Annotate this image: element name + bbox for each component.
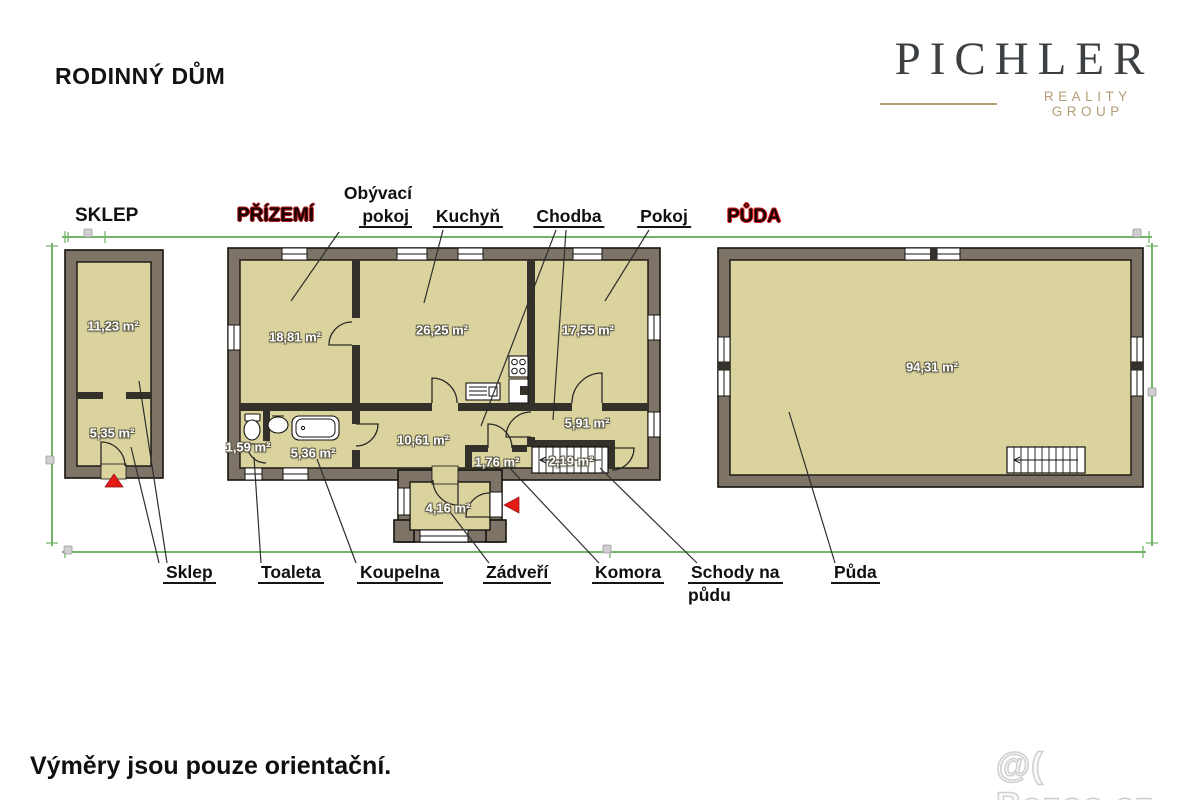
room-label-kuchyn: Kuchyň [433,205,503,228]
toilet-icon [244,414,260,440]
floor-title-puda: PŮDA [727,206,781,228]
area-label-komora: 1,76 m² [475,455,520,470]
entrance-door-opening [490,492,502,517]
footer-disclaimer: Výměry jsou pouze orientační. [30,752,391,781]
sklep-divider-wall [77,392,103,399]
leader-schody [600,468,697,563]
floorplan-prizemi [228,248,660,542]
floorplan-page: RODINNÝ DŮM PICHLER REALITY GROUP SKLEP … [0,0,1200,800]
stove-icon [509,356,528,377]
puda-stairs-icon [1007,447,1085,473]
room-label-toaleta: Toaleta [258,561,324,584]
chimney-niche [509,379,528,403]
floorplan-drawing [0,0,1200,800]
watermark-bazos: @( Bazos.cz [996,746,1200,800]
floorplan-sklep [65,250,163,487]
room-label-komora: Komora [592,561,664,584]
room-label-puda: Půda [831,561,880,584]
area-label-sklep-lower: 5,35 m² [90,426,135,441]
brand-logo: PICHLER REALITY GROUP [880,34,1168,119]
area-label-zadveri: 4,16 m² [426,501,471,516]
room-label-koupelna: Koupelna [357,561,443,584]
floor-title-prizemi: PŘÍZEMÍ [237,205,314,227]
area-label-kuchyn: 26,25 m² [416,323,468,338]
room-label-obyvaci-pokoj: Obývací pokoj [330,182,412,228]
bathtub-icon [292,416,339,440]
room-label-obyvaci-line2: pokoj [359,206,412,228]
main-entrance-arrow-icon [504,497,519,513]
room-label-obyvaci-line1: Obývací [344,183,412,203]
room-label-schody-line1: Schody na [688,562,783,584]
brand-tagline: REALITY GROUP [1008,89,1168,119]
room-label-pokoj: Pokoj [637,205,691,228]
area-label-chodba-upper: 5,91 m² [565,416,610,431]
area-label-sklep-upper: 11,23 m² [87,319,138,334]
area-label-toaleta: 1,59 m² [226,440,271,455]
room-label-chodba: Chodba [533,205,604,228]
brand-name: PICHLER [880,34,1168,86]
room-label-schody-line2: půdu [688,585,731,605]
area-label-schody: 2,19 m² [549,454,594,469]
kitchen-sink-icon [466,383,500,400]
area-label-pokoj: 17,55 m² [562,323,614,338]
hall-to-zadveri-opening [432,466,458,484]
floor-title-sklep: SKLEP [75,205,138,227]
room-label-zadveri: Zádveří [483,561,551,584]
area-label-obyvaci: 18,81 m² [269,330,321,345]
area-label-chodba-main: 10,61 m² [397,433,449,448]
area-label-koupelna: 5,36 m² [291,446,336,461]
logo-divider-line [880,103,997,105]
area-label-puda: 94,31 m² [906,360,958,375]
room-label-schody-na-pudu: Schody na půdu [688,561,783,607]
page-title: RODINNÝ DŮM [55,63,225,90]
room-label-sklep: Sklep [163,561,216,584]
